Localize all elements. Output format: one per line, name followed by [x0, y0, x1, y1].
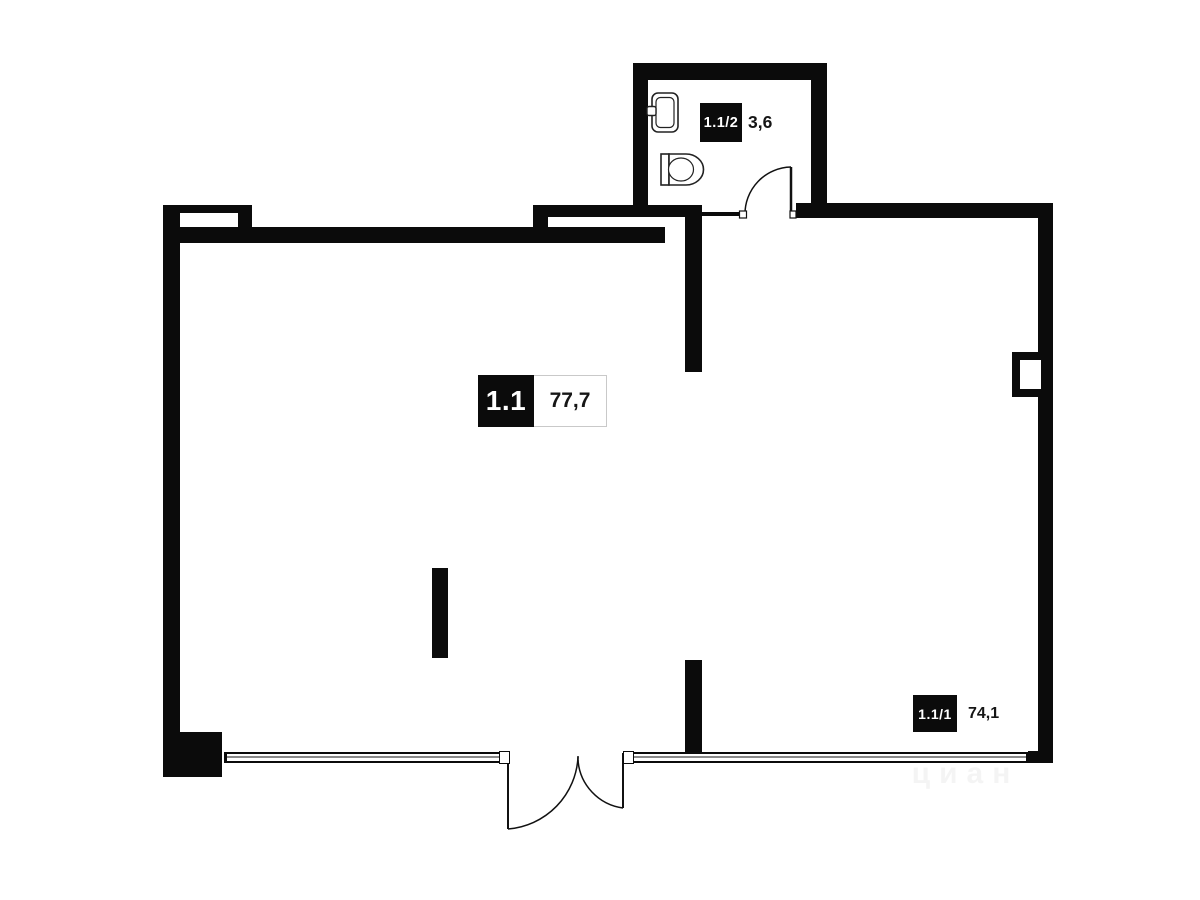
window-mid-line — [225, 756, 505, 758]
bathroom-door-arc-icon — [740, 167, 797, 218]
room-area-label: 74,1 — [968, 695, 999, 732]
wall-bathroom-top — [633, 63, 827, 80]
toilet-icon — [661, 154, 704, 185]
wall-bathroom-right — [811, 63, 827, 218]
wall-top-step — [533, 205, 548, 227]
unit-area-box: 77,7 — [534, 375, 607, 427]
unit-id-badge: 1.1 — [478, 375, 534, 427]
entry-double-door-arc-icon — [508, 753, 623, 829]
wall-top-right — [796, 203, 1053, 218]
wall-top-main — [178, 227, 665, 243]
entry-door-jamb-right — [623, 751, 634, 764]
floorplan-canvas: 1.1 77,7 1.1/2 3,6 1.1/1 74,1 циан — [0, 0, 1200, 900]
wall-top-thin-upper — [548, 205, 702, 217]
wall-interior-vertical — [685, 205, 702, 372]
unit-label: 1.1 77,7 — [478, 375, 607, 427]
room-id-badge: 1.1/1 — [913, 695, 957, 732]
window-bottom-left — [225, 752, 505, 763]
wall-stub-center — [432, 568, 448, 658]
wall-bathroom-left — [633, 63, 648, 217]
window-end-tick — [1026, 752, 1029, 763]
bathroom-area-label: 3,6 — [748, 103, 772, 142]
window-start-tick — [224, 752, 227, 763]
wall-left — [163, 205, 180, 752]
wall-niche — [1012, 352, 1041, 397]
wall-topleft-post — [238, 205, 252, 228]
watermark: циан — [868, 756, 1063, 792]
bathroom-door-threshold — [702, 212, 745, 216]
entry-door-jamb-left — [499, 751, 510, 764]
wall-right — [1038, 203, 1053, 763]
wall-stub-bottom — [685, 660, 702, 752]
sink-icon — [647, 93, 678, 132]
bathroom-id-badge: 1.1/2 — [700, 103, 742, 142]
wall-corner-column — [163, 732, 222, 777]
